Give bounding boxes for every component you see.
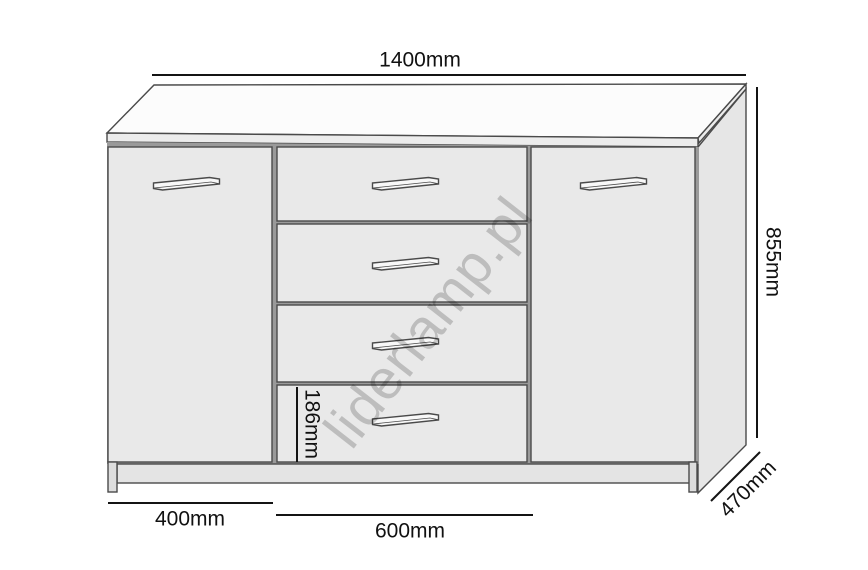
drawer-height-dimension-label: 186mm: [302, 389, 323, 459]
diagram-canvas: liderlamp.pl 1400mm 855mm 470mm 400mm 60…: [0, 0, 868, 570]
width-dimension-label: 1400mm: [379, 50, 461, 71]
door-width-dimension-label: 400mm: [155, 509, 225, 530]
right-side-panel: [698, 89, 746, 493]
right-door: [531, 147, 695, 462]
height-dimension-label: 855mm: [763, 227, 784, 297]
drawer-width-dimension-label: 600mm: [375, 521, 445, 542]
left-foot: [108, 462, 117, 492]
plinth: [117, 464, 690, 483]
right-foot: [689, 462, 697, 492]
top-surface: [107, 84, 746, 138]
left-door: [108, 147, 272, 462]
